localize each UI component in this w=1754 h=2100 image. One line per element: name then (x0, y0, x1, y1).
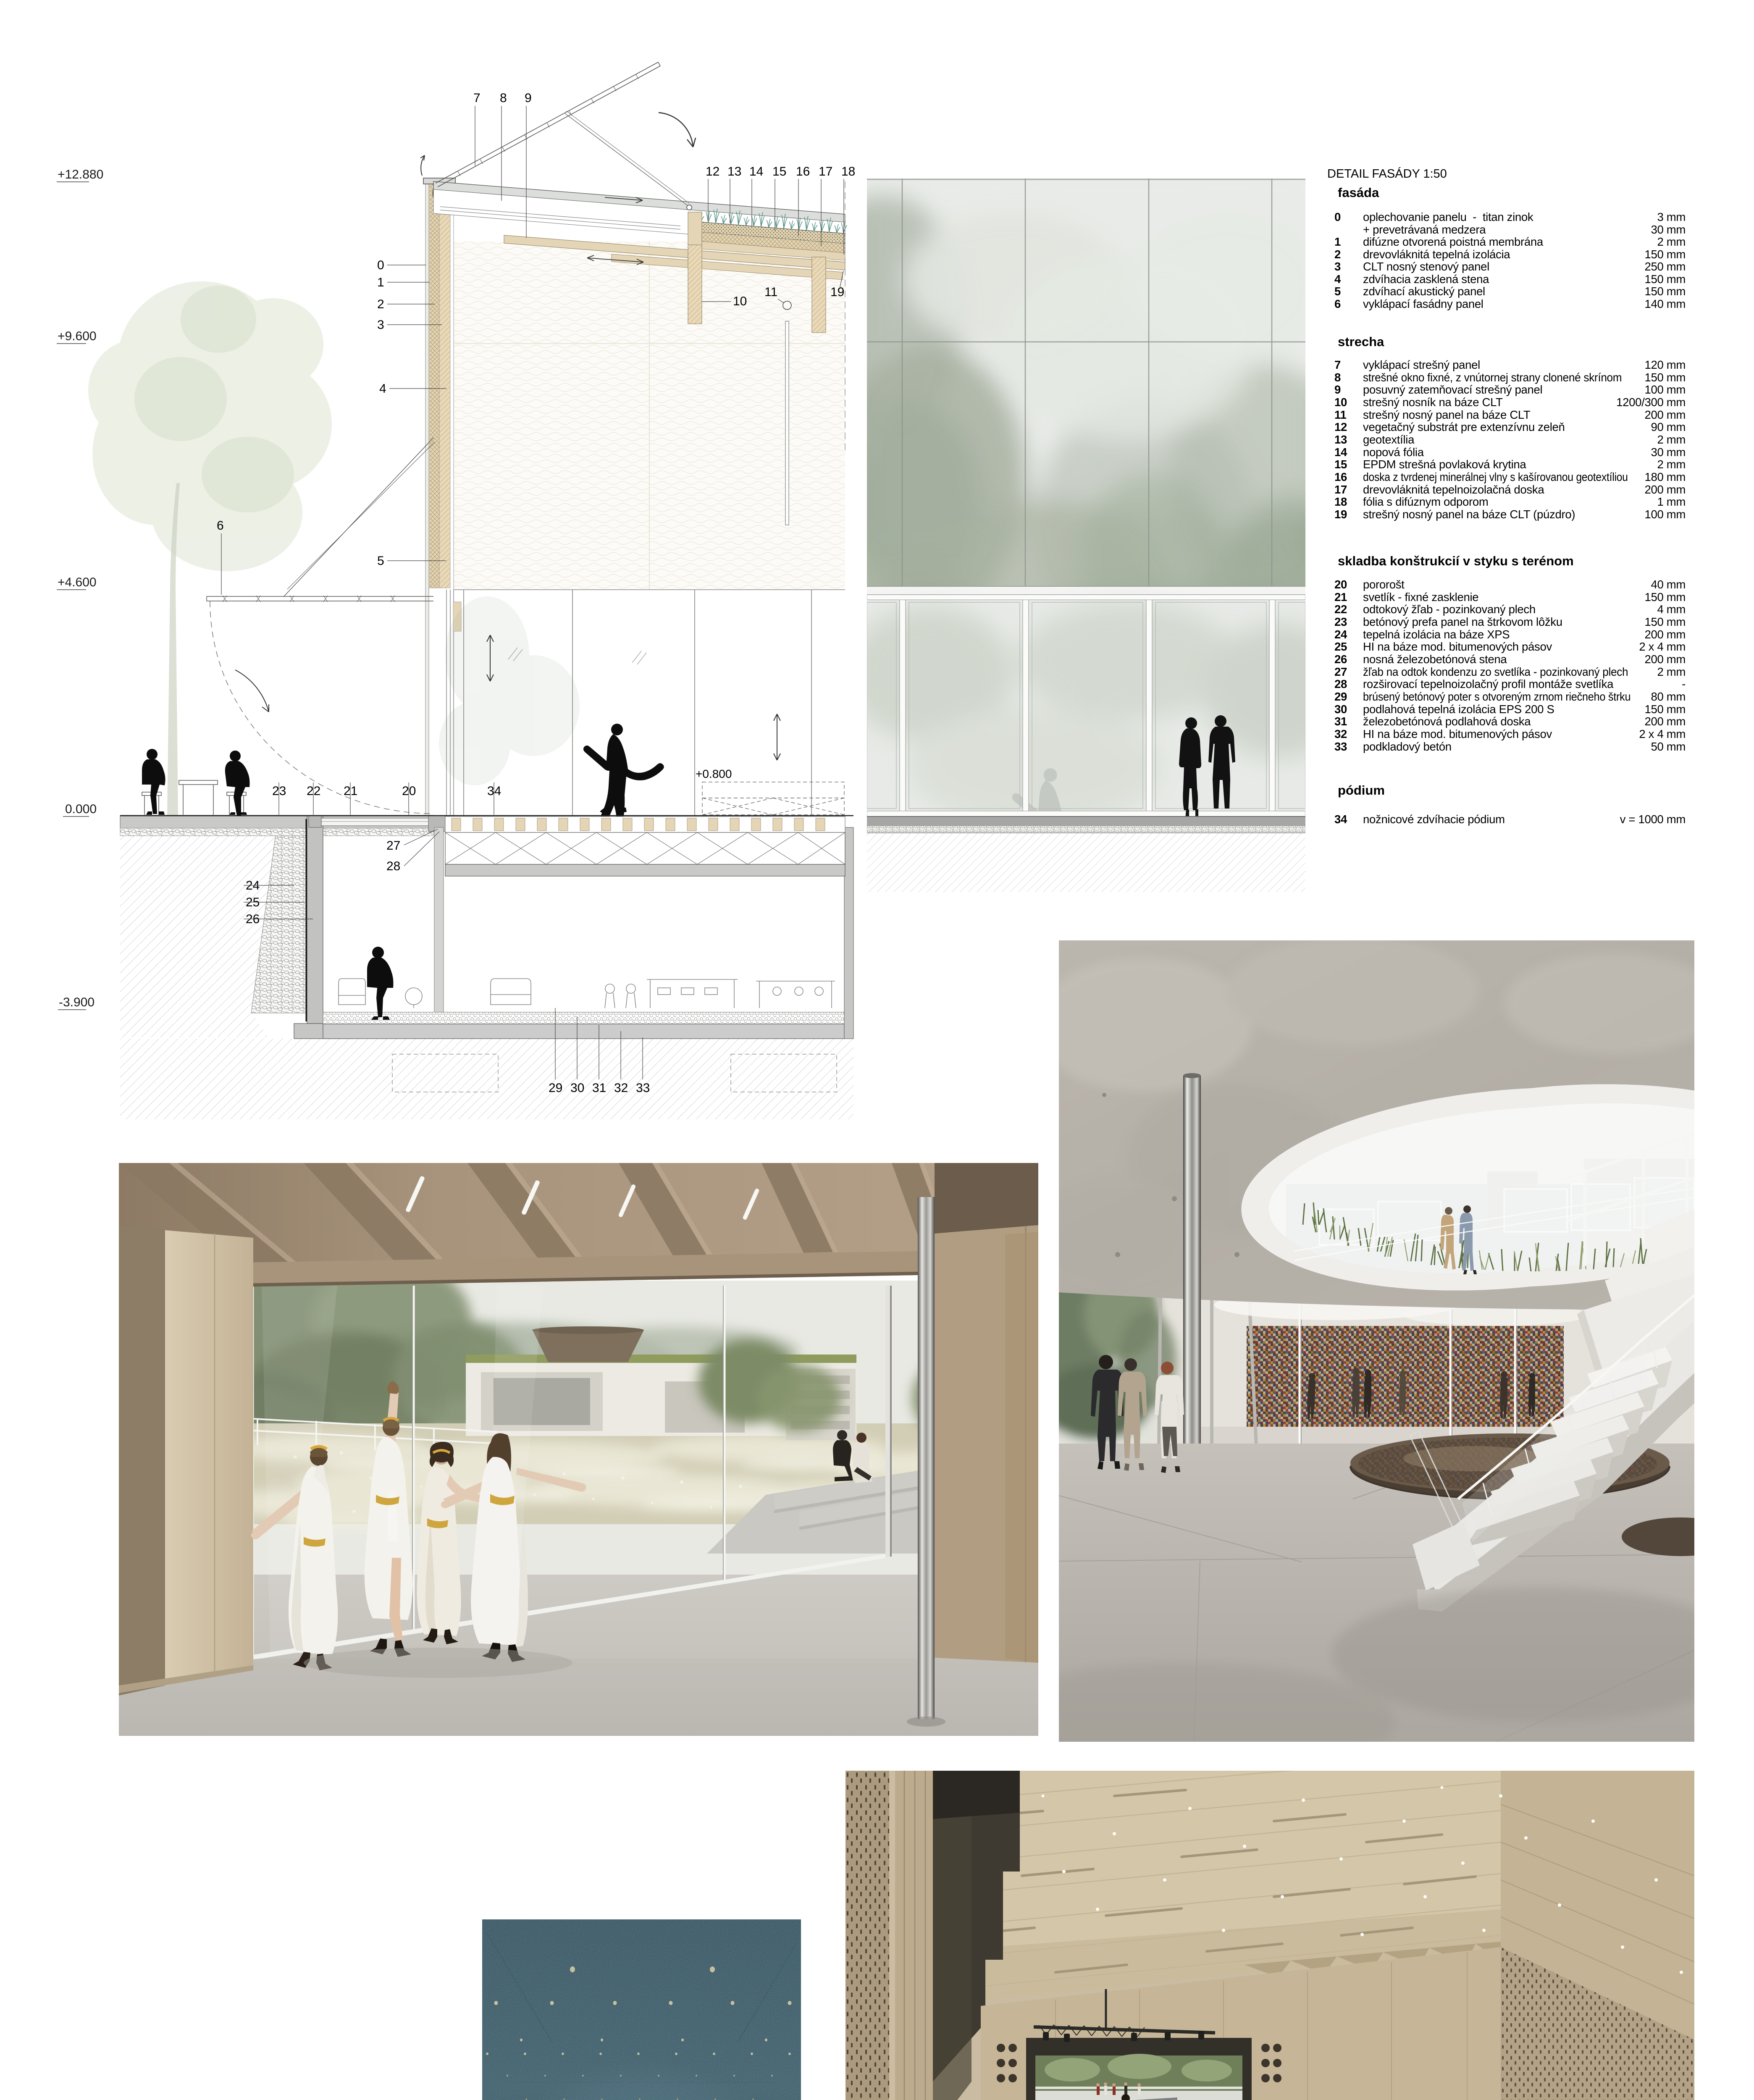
svg-text:7: 7 (473, 91, 481, 105)
svg-text:27: 27 (386, 839, 400, 853)
svg-text:29: 29 (549, 1081, 562, 1095)
svg-text:19: 19 (830, 285, 844, 299)
svg-text:11: 11 (764, 285, 777, 299)
svg-text:22: 22 (307, 784, 320, 798)
svg-text:6: 6 (217, 519, 224, 533)
svg-text:1: 1 (377, 276, 384, 289)
svg-text:28: 28 (386, 859, 400, 873)
svg-text:0.000: 0.000 (65, 802, 97, 816)
svg-text:20: 20 (402, 784, 416, 798)
svg-text:14: 14 (749, 165, 763, 178)
svg-text:32: 32 (614, 1081, 628, 1095)
svg-text:12: 12 (706, 165, 719, 178)
svg-text:9: 9 (525, 91, 532, 105)
svg-text:5: 5 (377, 554, 384, 568)
svg-text:23: 23 (272, 784, 286, 798)
svg-text:0: 0 (377, 258, 384, 272)
svg-text:21: 21 (344, 784, 357, 798)
svg-text:16: 16 (796, 165, 810, 178)
svg-text:18: 18 (841, 165, 855, 178)
svg-text:17: 17 (819, 165, 832, 178)
svg-text:8: 8 (500, 91, 507, 105)
svg-text:-3.900: -3.900 (59, 995, 95, 1009)
svg-text:31: 31 (592, 1081, 606, 1095)
svg-text:15: 15 (772, 165, 786, 178)
svg-text:3: 3 (377, 318, 384, 332)
svg-text:+9.600: +9.600 (58, 329, 97, 343)
svg-text:+0.800: +0.800 (696, 767, 732, 780)
svg-text:33: 33 (636, 1081, 650, 1095)
svg-text:2: 2 (377, 297, 384, 311)
svg-text:+12.880: +12.880 (58, 168, 103, 181)
svg-text:+4.600: +4.600 (58, 575, 97, 589)
svg-text:10: 10 (733, 294, 747, 308)
svg-text:34: 34 (487, 784, 501, 798)
svg-text:4: 4 (379, 382, 386, 396)
svg-text:13: 13 (727, 165, 741, 178)
svg-text:30: 30 (570, 1081, 584, 1095)
